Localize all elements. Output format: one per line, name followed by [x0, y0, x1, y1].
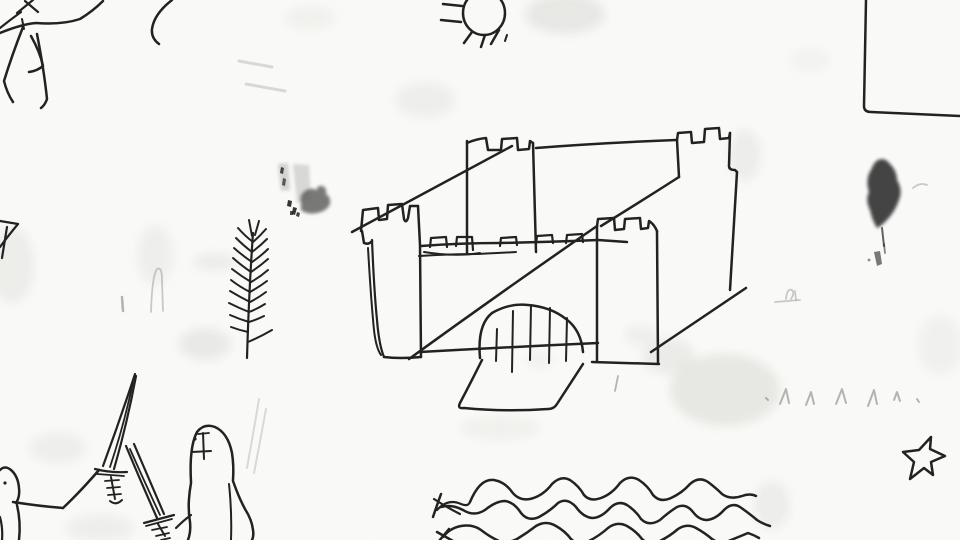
- sketch-drawing: [0, 0, 960, 540]
- paper-grain: [0, 0, 960, 540]
- paper-canvas: [0, 0, 960, 540]
